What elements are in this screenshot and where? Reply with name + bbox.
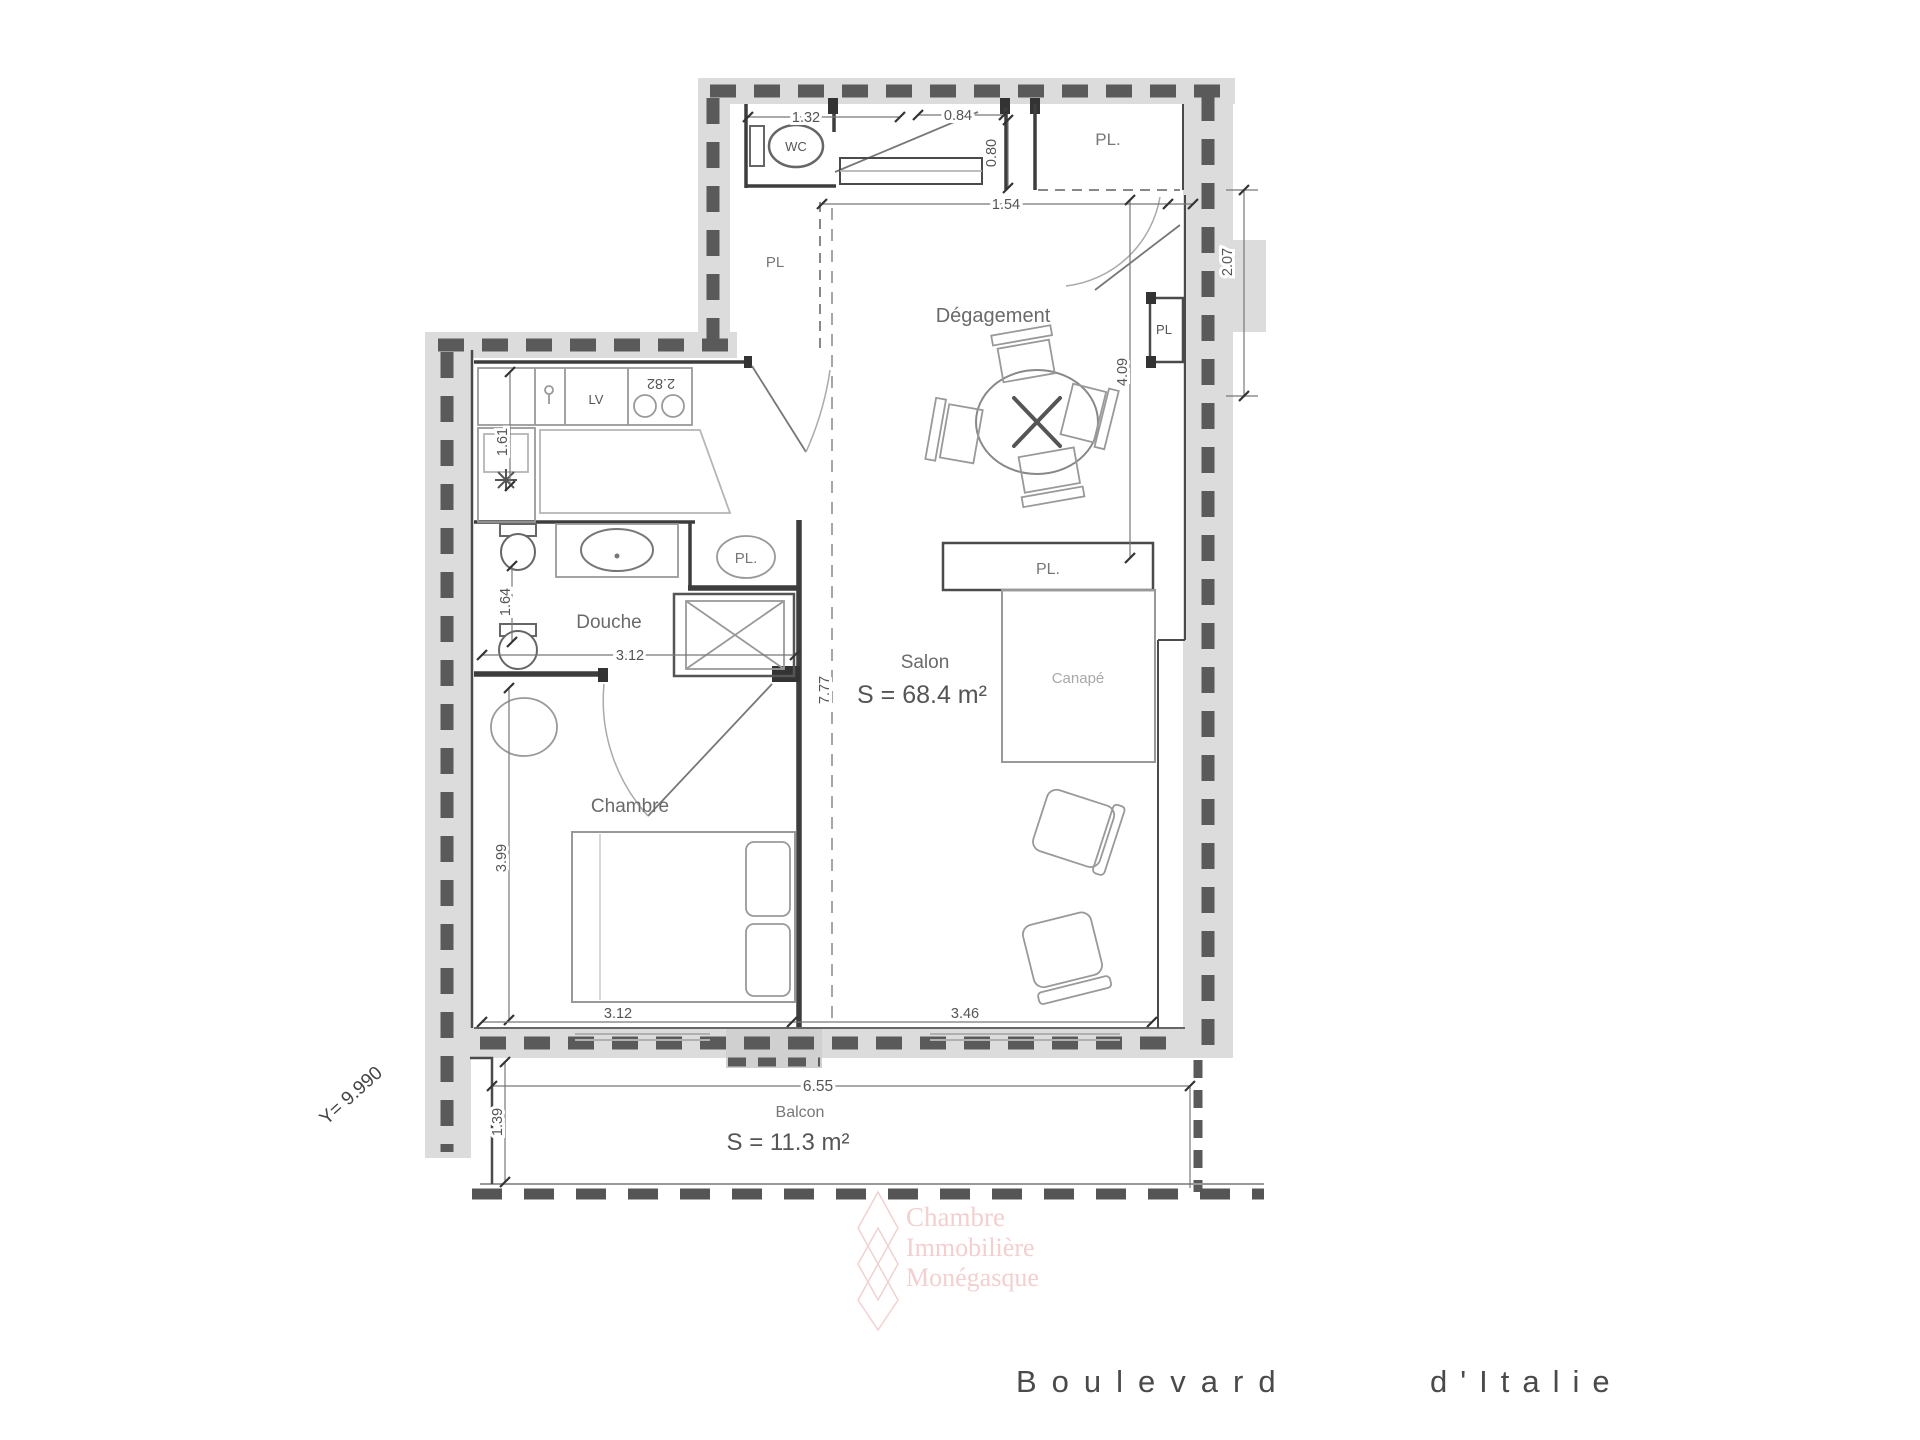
dim-chambre-h: 3.99 xyxy=(494,844,510,872)
toilet-tank xyxy=(750,126,764,166)
dim-chambre-w: 3.12 xyxy=(604,1006,632,1022)
dim-entry-recess: 0.80 xyxy=(984,139,1000,167)
closet-top-right-label: PL. xyxy=(1095,130,1121,149)
wc-label: WC xyxy=(785,139,807,154)
armchair xyxy=(1029,783,1125,876)
toilet2-bowl xyxy=(501,534,535,570)
dishwasher-label: LV xyxy=(589,392,604,407)
symbol-star xyxy=(495,469,517,491)
bed xyxy=(572,832,795,1002)
dim-degagement-h: 4.09 xyxy=(1115,358,1131,386)
watermark-diamond-logo xyxy=(858,1192,898,1330)
dim-hall: 1.54 xyxy=(992,197,1020,213)
chambre-room: Chambre xyxy=(491,698,795,1002)
street-word-1: Boulevard xyxy=(1016,1364,1291,1399)
cooktop-burner xyxy=(662,395,684,417)
side-table xyxy=(491,698,557,756)
table-cross xyxy=(1014,398,1060,446)
dim-balcon-w: 6.55 xyxy=(803,1078,833,1095)
armchair xyxy=(1021,909,1112,1005)
dim-salon-w: 3.46 xyxy=(951,1006,979,1022)
sink-faucet xyxy=(545,386,553,394)
floorplan-page: WC PL. PL PL Dégagement LV PL. xyxy=(0,0,1920,1440)
kitchen: LV xyxy=(478,368,730,522)
dim-salon-h: 7.77 xyxy=(817,676,833,704)
dim-douche-w: 3.12 xyxy=(616,648,644,664)
wc-area: WC xyxy=(750,125,982,184)
chambre-label: Chambre xyxy=(591,796,669,817)
sofa-label: Canapé xyxy=(1052,670,1105,687)
dim-wc-width: 1.32 xyxy=(792,110,820,126)
doors xyxy=(603,112,1180,816)
dining-chair xyxy=(1015,447,1085,507)
washbasin xyxy=(581,529,653,571)
vanity-counter xyxy=(556,524,678,577)
salon-area: S = 68.4 m² xyxy=(857,681,987,709)
interior-walls xyxy=(472,98,1185,1028)
dim-niche-h: 2.07 xyxy=(1220,248,1236,276)
dining-chair xyxy=(1060,380,1119,449)
street-name: Boulevard d'Italie xyxy=(1016,1364,1623,1399)
douche-label: Douche xyxy=(576,612,642,633)
dim-kitchen-w: 2.82 xyxy=(647,375,675,391)
pillow xyxy=(746,842,790,916)
balcon-label: Balcon xyxy=(776,1104,825,1121)
watermark-line3: Monégasque xyxy=(906,1263,1039,1292)
watermark-line1: Chambre xyxy=(906,1202,1005,1232)
dining-chair xyxy=(991,325,1058,383)
degagement-label: Dégagement xyxy=(936,305,1051,327)
entry-closet-label: PL xyxy=(766,254,784,271)
salon-label: Salon xyxy=(901,652,950,673)
douche-room: PL. Douche xyxy=(499,524,794,676)
shelf-label: PL. xyxy=(1036,561,1060,578)
survey-y-coordinate: Y= 9.990 xyxy=(316,1062,387,1129)
street-word-2: d'Italie xyxy=(1430,1364,1623,1399)
dining-chair xyxy=(925,398,983,467)
pillow xyxy=(746,924,790,996)
watermark-line2: Immobilière xyxy=(906,1233,1035,1262)
watermark: Chambre Immobilière Monégasque xyxy=(858,1192,1039,1330)
dim-douche-h: 1.64 xyxy=(498,588,514,616)
salon-room: PL. Canapé Salon S = 68.4 m² xyxy=(857,325,1155,1005)
dim-balcon-d: 1.39 xyxy=(490,1108,506,1136)
douche-closet-label: PL. xyxy=(735,550,758,567)
balcon-area: S = 11.3 m² xyxy=(727,1129,850,1156)
dim-kitchen-h: 1.61 xyxy=(495,428,511,456)
floorplan-drawing: WC PL. PL PL Dégagement LV PL. xyxy=(0,0,1920,1440)
kitchen-island xyxy=(540,430,730,513)
niche-closet-label: PL xyxy=(1156,322,1172,337)
exterior-walls xyxy=(425,78,1266,1192)
bidet-bowl xyxy=(499,631,537,669)
balcony: Balcon S = 11.3 m² xyxy=(727,1104,850,1156)
dim-entry-door: 0.84 xyxy=(944,108,972,124)
cooktop-burner xyxy=(634,395,656,417)
